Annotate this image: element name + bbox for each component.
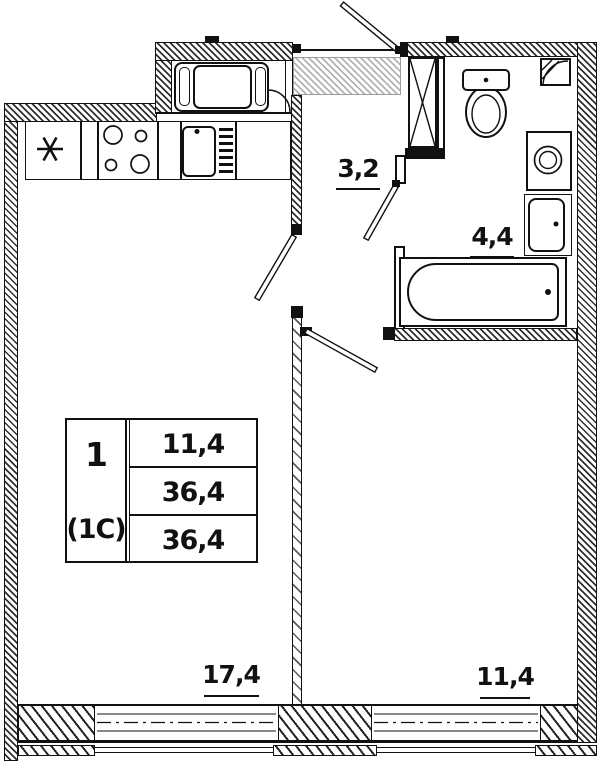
tub-drain-dot: [545, 289, 551, 295]
kitchen-door-leaf: [255, 235, 296, 301]
plan-symbols-layer: [0, 0, 600, 761]
bathroom-door-hinge: [392, 180, 400, 187]
asterisk-appliance-icon: [37, 138, 63, 161]
bathroom-door-leaf: [364, 185, 398, 240]
entrance-door-hinge: [395, 46, 403, 54]
vent-corner-icon: [542, 60, 568, 84]
entrance-door-leaf: [340, 2, 400, 53]
stove-burners-icon: [104, 126, 149, 173]
toilet-icon: [463, 70, 509, 137]
room-door-leaf: [305, 329, 377, 372]
cabinet-door-arc: [268, 90, 290, 112]
washing-machine-drum-icon: [535, 147, 562, 174]
basin-tap-dot: [554, 222, 559, 227]
floor-plan: 1 (1C) 11,4 36,4 36,4 3,2 4,4 17,4 11,4: [0, 0, 600, 761]
entrance-x-mark: [410, 59, 435, 146]
sink-tap-dot: [195, 129, 200, 134]
label-underlines: [204, 189, 530, 698]
